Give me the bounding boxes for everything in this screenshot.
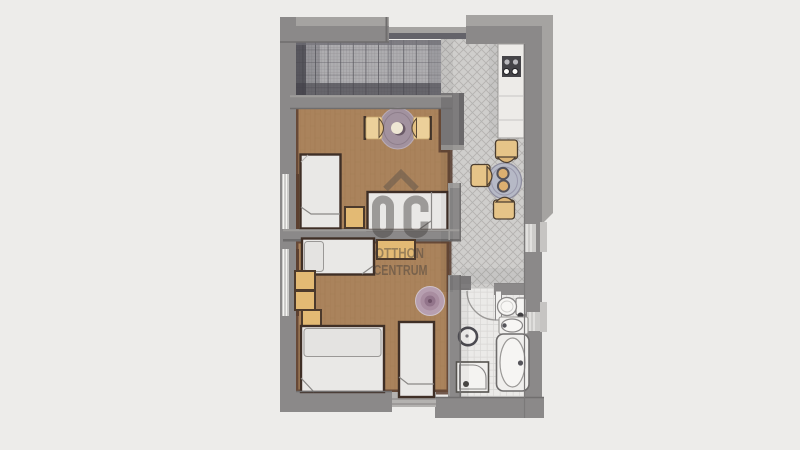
svg-text:OTTHON: OTTHON <box>375 246 424 262</box>
svg-text:CENTRUM: CENTRUM <box>374 263 428 279</box>
